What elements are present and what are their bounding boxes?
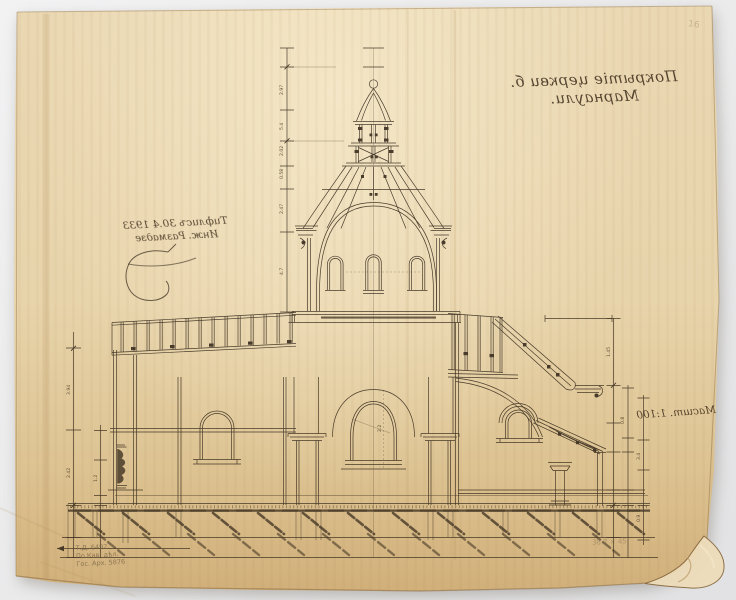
central-arch-and-pilasters [178, 377, 459, 505]
porch-bracket-and-column [534, 418, 607, 506]
drum-windows [325, 255, 428, 294]
photo-background: 2.97 5.4 2.02 0.58 2.47 4.7 3.94 2.42 1.… [0, 0, 736, 600]
dimension-label: 5.4 [279, 123, 285, 130]
dimension-label: 2.42 [66, 468, 72, 478]
dimension-label: 0.8 [620, 417, 626, 424]
floor-and-foundation [57, 490, 658, 558]
left-wall-and-corbel [108, 350, 296, 505]
left-roof-rafters [112, 313, 296, 356]
dimension-label: 0.9 [636, 515, 642, 522]
right-roof-structure [448, 314, 604, 506]
dimension-labels: 2.97 5.4 2.02 0.58 2.47 4.7 3.94 2.42 1.… [66, 85, 642, 522]
dimension-label: 1.2 [93, 475, 99, 482]
dimension-label: 2.97 [279, 85, 285, 95]
inventory-pencil-note: Т.Д. 6492. По Кав. дѣл. Гос. Арх. 5876 [75, 542, 125, 569]
dimension-label: 2.02 [279, 146, 285, 156]
dimension-label: 3.4 [636, 453, 642, 460]
corner-pencil-mark: 16 [687, 19, 700, 30]
dimension-label: 2.47 [279, 204, 285, 214]
left-aisle-window [193, 411, 241, 464]
signature-scribble [126, 244, 196, 301]
dimension-label: 4.7 [279, 268, 285, 275]
dimension-label: 2.2 [377, 425, 383, 432]
dimension-label: 1.45 [606, 347, 612, 357]
size-pencil-note: 38.7 × 45 [592, 537, 627, 546]
curled-corner [645, 536, 724, 588]
entablature-band [289, 312, 462, 323]
dimension-label: 0.58 [279, 169, 285, 179]
dimension-label: 3.94 [66, 385, 72, 395]
